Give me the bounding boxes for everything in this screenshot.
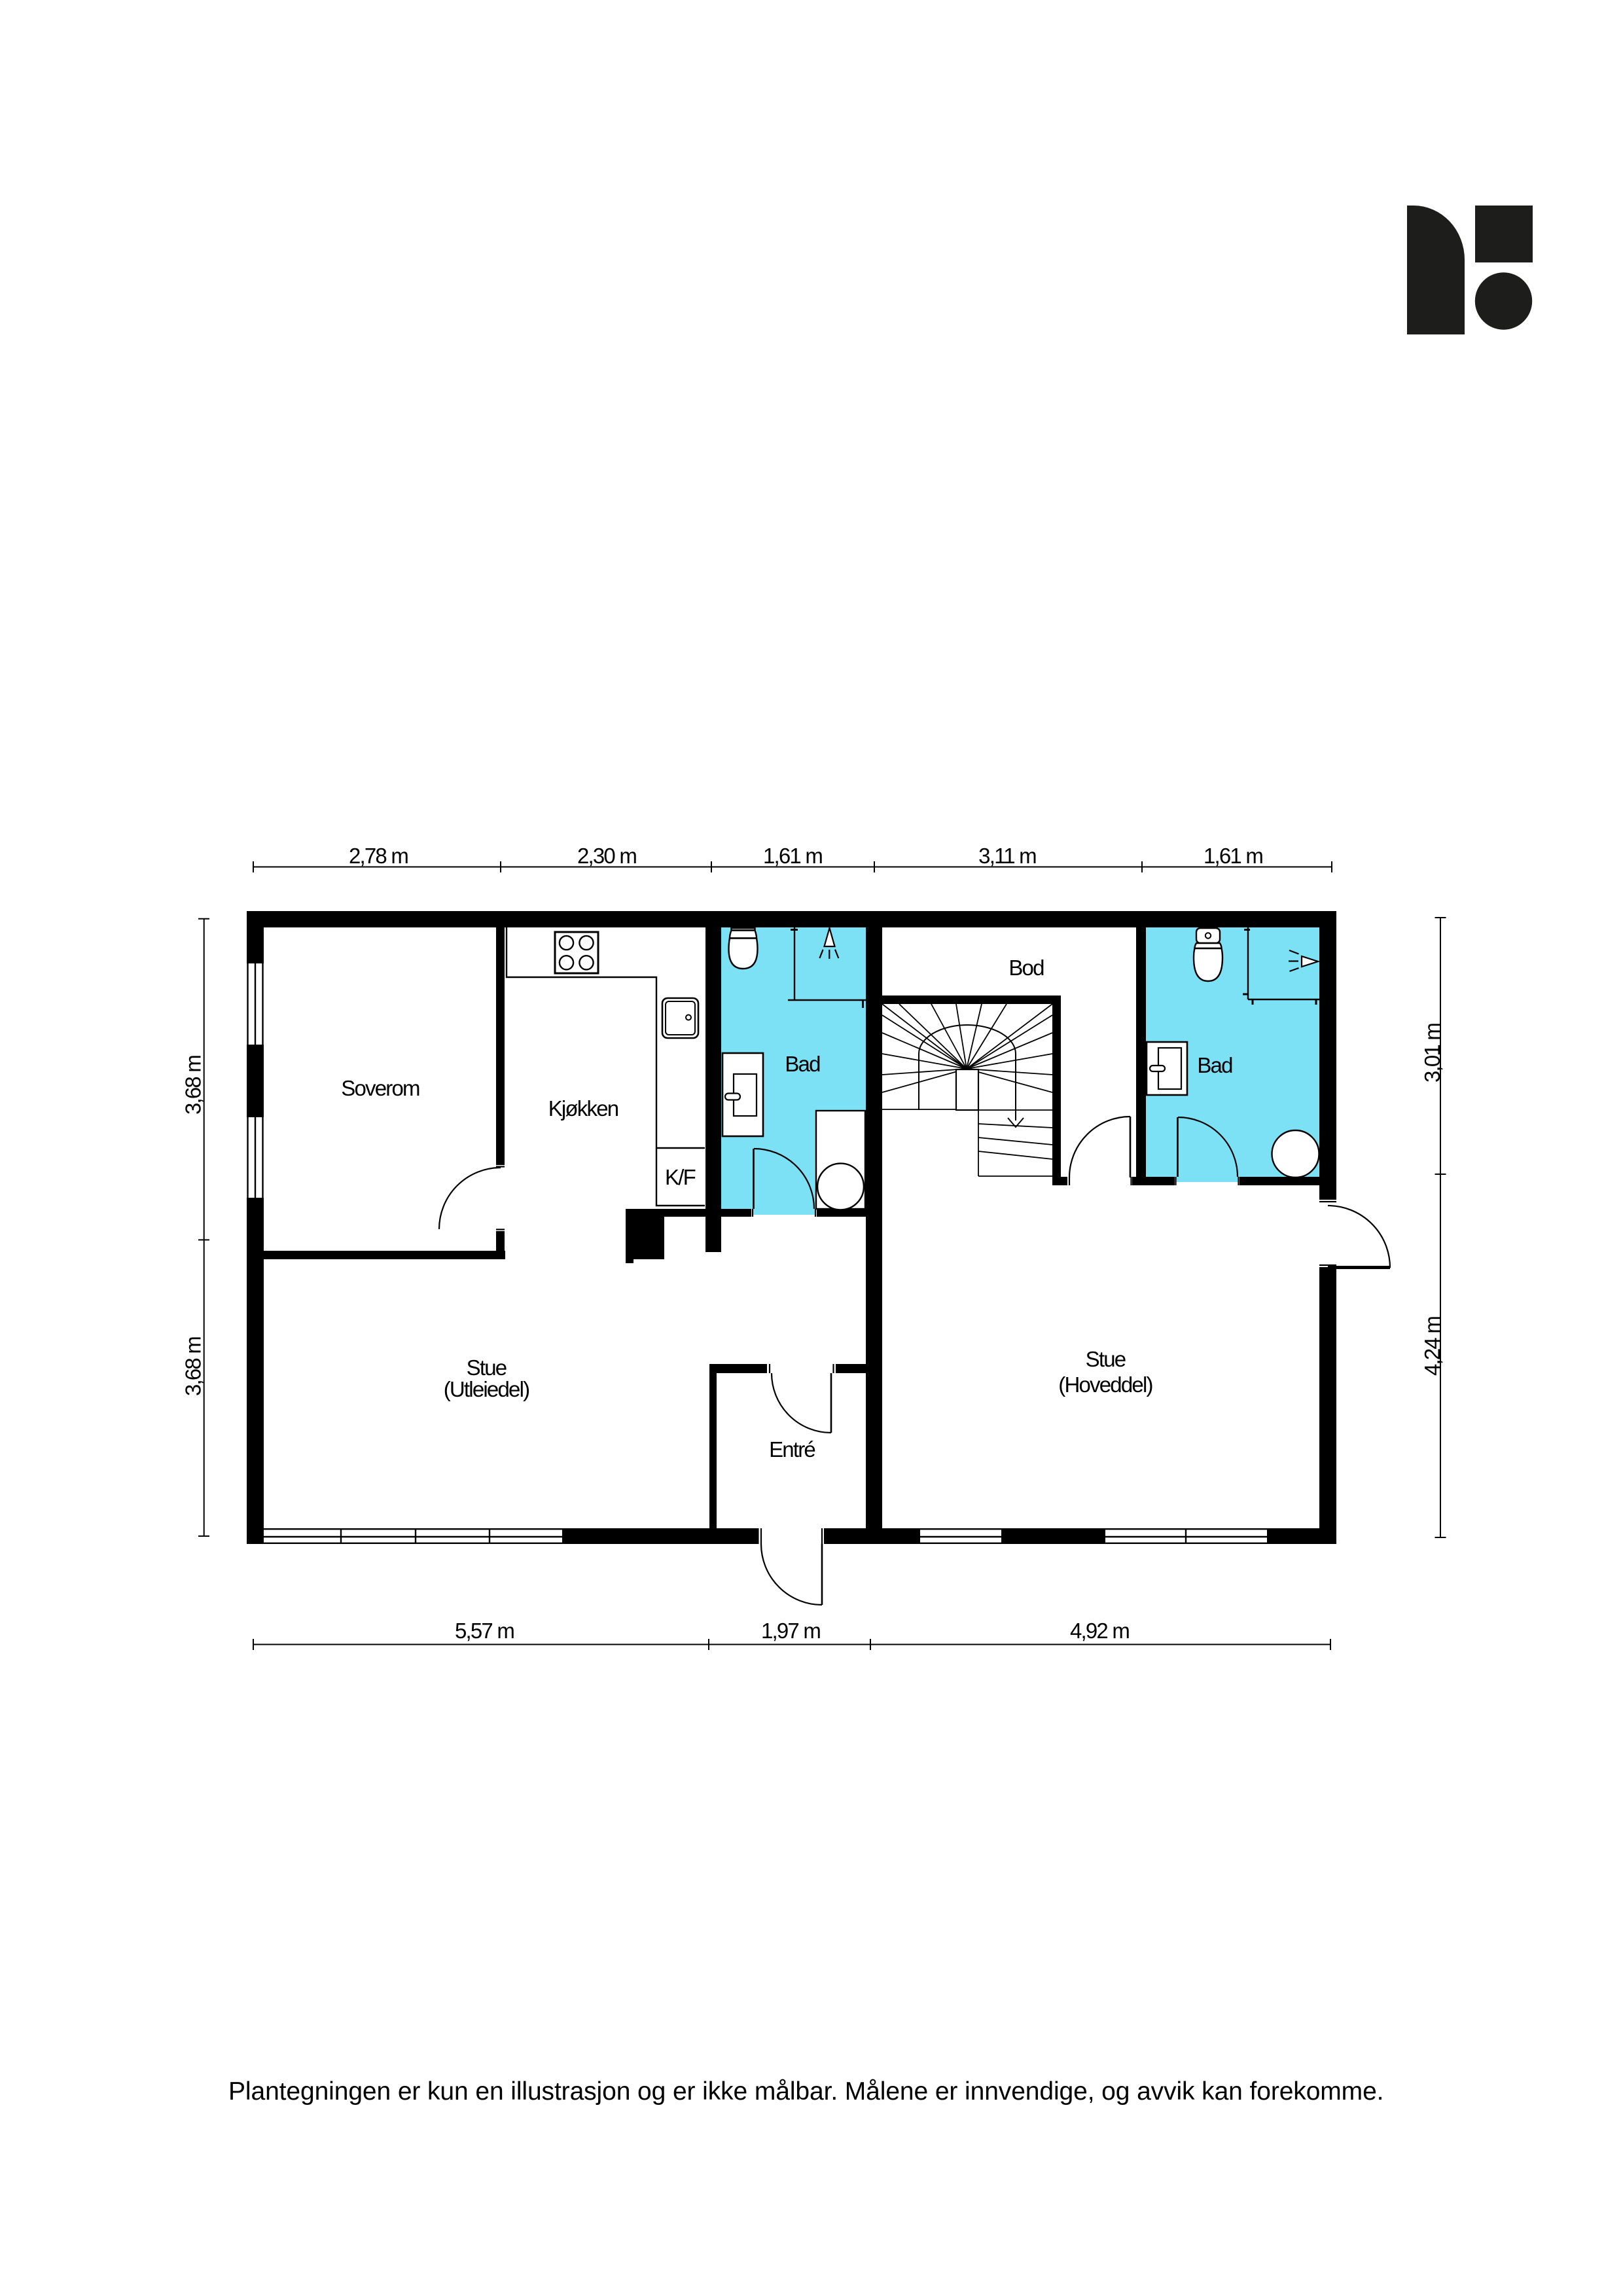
svg-text:3,11 m: 3,11 m <box>978 844 1036 868</box>
svg-text:3,01 m: 3,01 m <box>1420 1024 1444 1083</box>
svg-text:(Utleiedel): (Utleiedel) <box>444 1377 529 1401</box>
svg-text:Stue: Stue <box>1086 1347 1126 1371</box>
svg-text:1,97 m: 1,97 m <box>761 1619 820 1643</box>
svg-text:1,61 m: 1,61 m <box>1204 844 1262 868</box>
svg-text:5,57 m: 5,57 m <box>455 1619 514 1643</box>
svg-text:2,30 m: 2,30 m <box>577 844 636 868</box>
svg-text:Soverom: Soverom <box>341 1076 419 1100</box>
svg-text:Plantegningen er kun en illust: Plantegningen er kun en illustrasjon og … <box>228 2077 1383 2106</box>
svg-text:2,78 m: 2,78 m <box>349 844 408 868</box>
svg-text:Kjøkken: Kjøkken <box>548 1096 618 1121</box>
svg-text:Entré: Entré <box>769 1437 815 1462</box>
svg-text:(Hoveddel): (Hoveddel) <box>1058 1372 1152 1397</box>
svg-text:1,61 m: 1,61 m <box>763 844 822 868</box>
svg-text:4,92 m: 4,92 m <box>1070 1619 1129 1643</box>
svg-text:4,24 m: 4,24 m <box>1420 1317 1444 1376</box>
svg-text:Bad: Bad <box>785 1052 820 1076</box>
svg-text:K/F: K/F <box>665 1165 696 1189</box>
svg-text:Bod: Bod <box>1008 956 1044 980</box>
svg-text:Bad: Bad <box>1197 1053 1232 1077</box>
svg-text:3,68 m: 3,68 m <box>181 1056 205 1115</box>
svg-text:Stue: Stue <box>467 1355 507 1380</box>
svg-text:3,68 m: 3,68 m <box>181 1337 205 1396</box>
